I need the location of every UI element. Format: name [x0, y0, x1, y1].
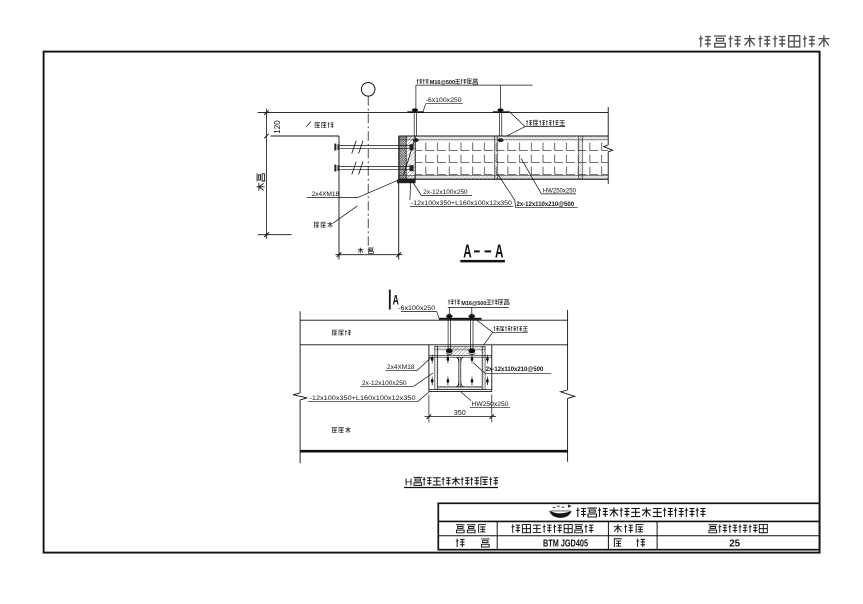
svg-text:2x-12x110x210@500: 2x-12x110x210@500	[517, 202, 575, 208]
svg-text:M16@500: M16@500	[461, 301, 486, 307]
svg-text:BTM JGD405: BTM JGD405	[543, 539, 588, 550]
svg-text:M16@500: M16@500	[430, 80, 455, 86]
svg-text:2x4XM18: 2x4XM18	[312, 191, 340, 198]
svg-text:2x-12x110x210@500: 2x-12x110x210@500	[486, 367, 544, 373]
svg-text:120: 120	[273, 120, 282, 134]
svg-text:-6x100x250: -6x100x250	[426, 97, 462, 104]
svg-text:2x-12x100x250: 2x-12x100x250	[362, 380, 407, 387]
svg-text:25: 25	[729, 539, 740, 550]
svg-text:A: A	[463, 242, 471, 262]
svg-text:2x-12x100x250: 2x-12x100x250	[423, 189, 468, 196]
svg-text:-6x100x250: -6x100x250	[398, 305, 435, 312]
svg-text:HW250x250: HW250x250	[472, 401, 509, 408]
svg-text:2x4XM18: 2x4XM18	[387, 364, 415, 371]
svg-text:350: 350	[454, 408, 466, 417]
svg-text:-12x100x350+L160x100x12x350: -12x100x350+L160x100x12x350	[411, 200, 513, 207]
svg-text:H: H	[405, 477, 413, 489]
svg-text:A: A	[495, 242, 503, 262]
